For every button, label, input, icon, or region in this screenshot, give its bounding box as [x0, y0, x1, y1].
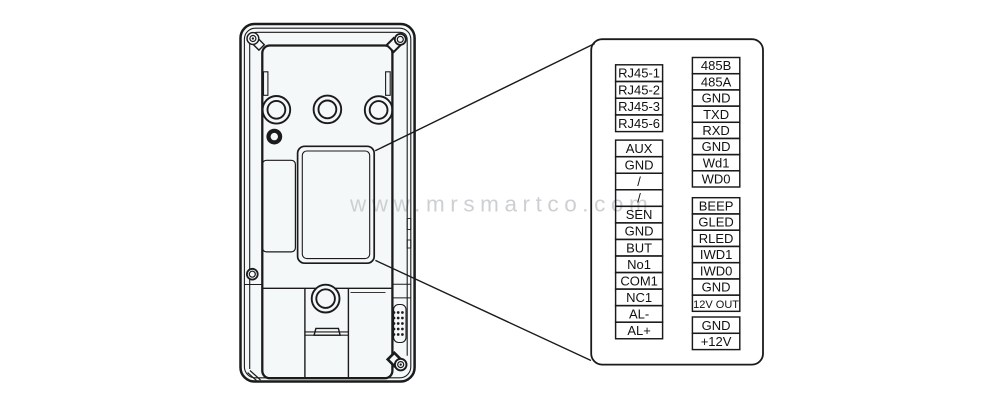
svg-text:www.mrsmartco.com: www.mrsmartco.com — [349, 191, 653, 216]
svg-text:+12V: +12V — [701, 334, 732, 349]
svg-text:TXD: TXD — [703, 107, 729, 122]
svg-text:/: / — [637, 191, 641, 206]
svg-text:IWD1: IWD1 — [700, 247, 733, 262]
svg-text:GND: GND — [625, 158, 654, 173]
svg-text:RLED: RLED — [699, 231, 734, 246]
svg-text:GND: GND — [702, 318, 731, 333]
svg-text:COM1: COM1 — [620, 273, 658, 288]
svg-text:BUT: BUT — [626, 240, 652, 255]
svg-text:RJ45-3: RJ45-3 — [618, 99, 660, 114]
svg-text:NC1: NC1 — [626, 290, 652, 305]
svg-text:RJ45-1: RJ45-1 — [618, 66, 660, 81]
svg-text:Wd1: Wd1 — [703, 155, 730, 170]
svg-text:RJ45-6: RJ45-6 — [618, 116, 660, 131]
svg-text:485B: 485B — [701, 58, 731, 73]
svg-text:RJ45-2: RJ45-2 — [618, 82, 660, 97]
svg-text:AL-: AL- — [629, 307, 649, 322]
svg-text:GND: GND — [702, 280, 731, 295]
svg-text:12V OUT: 12V OUT — [693, 299, 739, 311]
svg-text:BEEP: BEEP — [699, 198, 734, 213]
svg-text:AL+: AL+ — [627, 323, 651, 338]
svg-text:WD0: WD0 — [702, 172, 731, 187]
svg-text:485A: 485A — [701, 74, 732, 89]
svg-text:AUX: AUX — [626, 141, 653, 156]
svg-text:GND: GND — [625, 224, 654, 239]
svg-text:GND: GND — [702, 91, 731, 106]
svg-text:GND: GND — [702, 139, 731, 154]
svg-text:RXD: RXD — [702, 123, 729, 138]
svg-text:GLED: GLED — [698, 215, 733, 230]
svg-text:/: / — [637, 174, 641, 189]
svg-text:SEN: SEN — [626, 207, 653, 222]
svg-text:No1: No1 — [627, 257, 651, 272]
svg-text:IWD0: IWD0 — [700, 263, 733, 278]
